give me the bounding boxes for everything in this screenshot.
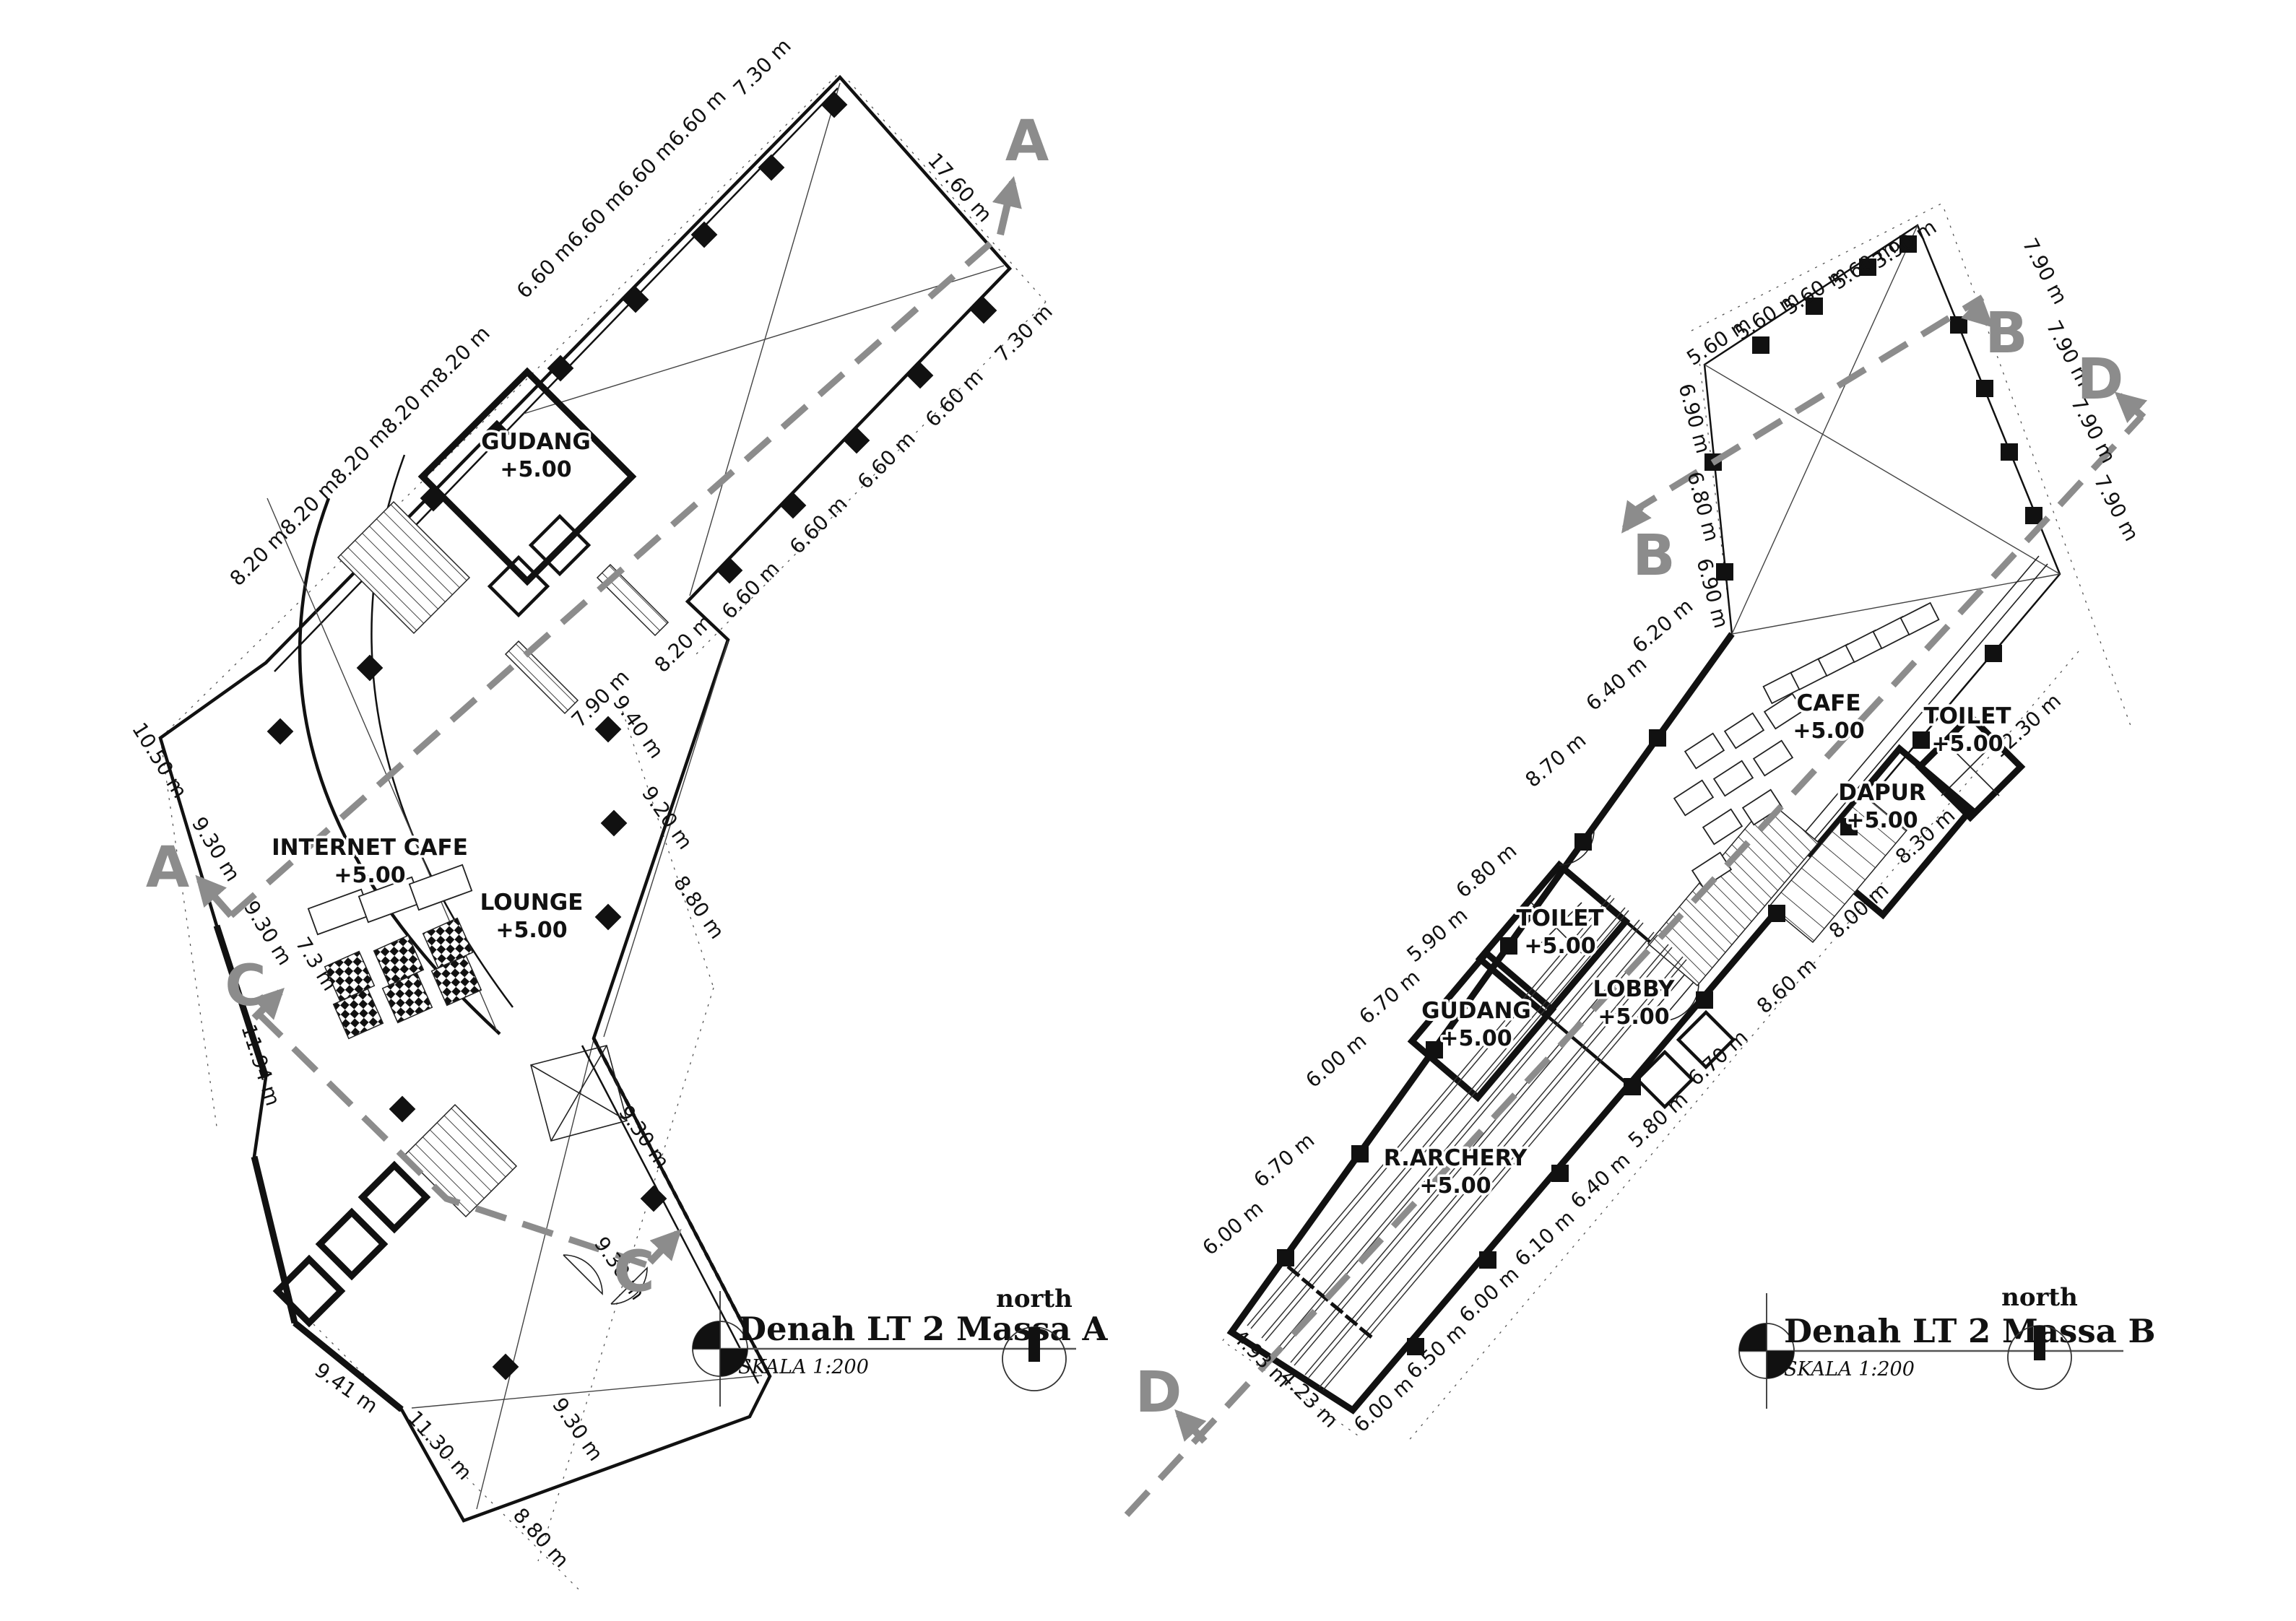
plan-a-title: Denah LT 2 Massa A	[738, 1310, 1108, 1348]
dimension-label: 8.70 m	[1521, 728, 1591, 792]
plan-a-north-label: north	[996, 1285, 1073, 1313]
room-level-label: +5.00	[334, 863, 405, 888]
section-line-a	[199, 182, 1013, 916]
room-label: CAFE	[1796, 690, 1860, 716]
room-level-label: +5.00	[1598, 1004, 1669, 1030]
dimension-label: 8.80 m	[508, 1503, 573, 1572]
dimension-label: 6.70 m	[1249, 1128, 1320, 1192]
section-line-b	[1625, 297, 1989, 529]
room-label: GUDANG	[1421, 998, 1531, 1024]
plan-a: 7.30 m6.60 m6.60 m6.60 m6.60 m8.20 m8.20…	[127, 34, 1108, 1592]
plan-a-internet-cafe-furniture	[308, 865, 481, 1039]
plan-b-braces	[1704, 225, 2060, 634]
dimension-label: 9.30 m	[187, 812, 245, 885]
room-level-label: +5.00	[1846, 808, 1918, 833]
dimension-label: 8.20 m	[377, 372, 444, 439]
crosshair-icon	[1739, 1293, 1794, 1409]
crosshair-icon	[693, 1291, 748, 1407]
dimension-label: 9.30 m	[547, 1394, 608, 1466]
dimension-label: 7.30 m	[990, 300, 1057, 367]
plan-b-north-label: north	[2001, 1283, 2078, 1312]
dimension-label: 8.60 m	[1752, 953, 1821, 1018]
dimension-label: 7.90 m	[2018, 234, 2072, 308]
dimension-label: 6.70 m	[1684, 1025, 1752, 1090]
dimension-label: 6.70 m	[1355, 965, 1425, 1029]
plan-a-stage	[531, 1046, 627, 1141]
section-marker-letter: D	[2077, 347, 2124, 412]
dimension-label: 10.50 m	[127, 718, 192, 802]
plan-b-titleblock: Denah LT 2 Massa B SKALA 1:200 north	[1739, 1283, 2156, 1409]
room-label: INTERNET CAFE	[272, 835, 468, 861]
dimension-label: 8.20 m	[428, 321, 495, 388]
room-level-label: +5.00	[495, 918, 567, 943]
dimension-label: 8.20 m	[326, 422, 394, 490]
dimension-label: 6.20 m	[1628, 594, 1698, 658]
dimension-label: 8.20 m	[225, 523, 293, 591]
plan-b-title: Denah LT 2 Massa B	[1784, 1312, 2156, 1350]
dimension-label: 6.80 m	[1682, 469, 1723, 544]
room-level-label: +5.00	[500, 457, 571, 482]
room-level-label: +5.00	[1793, 718, 1864, 744]
plan-a-zigzag-inner	[582, 1046, 758, 1383]
room-label: GUDANG	[481, 429, 591, 455]
section-marker-letter: D	[1135, 1360, 1182, 1425]
room-label: TOILET	[1516, 905, 1603, 931]
dimension-label: 5.90 m	[1403, 903, 1473, 967]
door-arc-a-1	[563, 1255, 602, 1294]
plan-b: 5.60 m5.60 m5.60 m5.60 m3.90 m7.90 m7.90…	[1127, 204, 2156, 1515]
room-level-label: +5.00	[1931, 731, 2003, 757]
floorplan-canvas: 7.30 m6.60 m6.60 m6.60 m6.60 m8.20 m8.20…	[0, 0, 2296, 1621]
dimension-label: 6.40 m	[1582, 651, 1652, 716]
section-marker-letter: A	[146, 835, 189, 900]
dimension-label: 6.00 m	[1301, 1028, 1372, 1092]
dimension-label: 9.20 m	[637, 782, 698, 854]
room-label: TOILET	[1923, 703, 2011, 729]
stair-a-upper	[338, 502, 469, 633]
dimension-label: 6.80 m	[1452, 838, 1522, 903]
room-label: R.ARCHERY	[1384, 1145, 1528, 1171]
escalator-a-1	[506, 641, 578, 713]
plan-b-dims: 5.60 m5.60 m5.60 m5.60 m3.90 m7.90 m7.90…	[1198, 214, 2144, 1437]
dimension-label: 6.60 m	[512, 236, 579, 303]
plan-a-titleblock: Denah LT 2 Massa A SKALA 1:200 north	[693, 1285, 1108, 1407]
section-marker-letter: B	[1632, 523, 1675, 588]
section-marker-letter: C	[225, 954, 266, 1019]
dimension-label: 6.00 m	[1198, 1196, 1268, 1260]
dimension-label: 6.90 m	[1673, 381, 1715, 456]
drawing-sheet: 7.30 m6.60 m6.60 m6.60 m6.60 m8.20 m8.20…	[0, 0, 2296, 1621]
section-marker-letter: B	[1985, 301, 2027, 366]
section-marker-letter: C	[613, 1240, 654, 1305]
dimension-label: 8.80 m	[669, 872, 729, 944]
plan-a-scale: SKALA 1:200	[738, 1356, 869, 1378]
plan-b-columns	[1277, 235, 2042, 1355]
escalator-a-2	[597, 565, 668, 635]
dimension-label: 6.00 m	[1455, 1262, 1523, 1327]
room-label: LOBBY	[1593, 976, 1675, 1002]
room-label: DAPUR	[1838, 780, 1926, 806]
dimension-label: 6.60 m	[563, 186, 630, 253]
room-level-label: +5.00	[1524, 934, 1595, 959]
section-marker-letter: A	[1005, 109, 1049, 174]
dimension-label: 8.20 m	[276, 473, 343, 540]
elevator-a-bank	[277, 1165, 426, 1323]
dimension-label: 6.40 m	[1566, 1148, 1634, 1213]
room-level-label: +5.00	[1440, 1026, 1512, 1051]
dimension-label: 11.30 m	[403, 1406, 477, 1485]
dimension-label: 6.60 m	[664, 84, 731, 152]
plan-b-scale: SKALA 1:200	[1784, 1358, 1915, 1381]
room-level-label: +5.00	[1419, 1173, 1491, 1199]
room-label: LOUNGE	[480, 890, 584, 916]
dimension-label: 6.60 m	[613, 135, 680, 202]
dimension-label: 7.30 m	[729, 34, 796, 101]
dimension-label: 9.30 m	[614, 1101, 675, 1173]
dimension-label: 5.80 m	[1624, 1087, 1692, 1152]
plan-a-dim-guides	[160, 72, 1046, 1592]
dimension-label: 7.90 m	[2089, 471, 2144, 544]
